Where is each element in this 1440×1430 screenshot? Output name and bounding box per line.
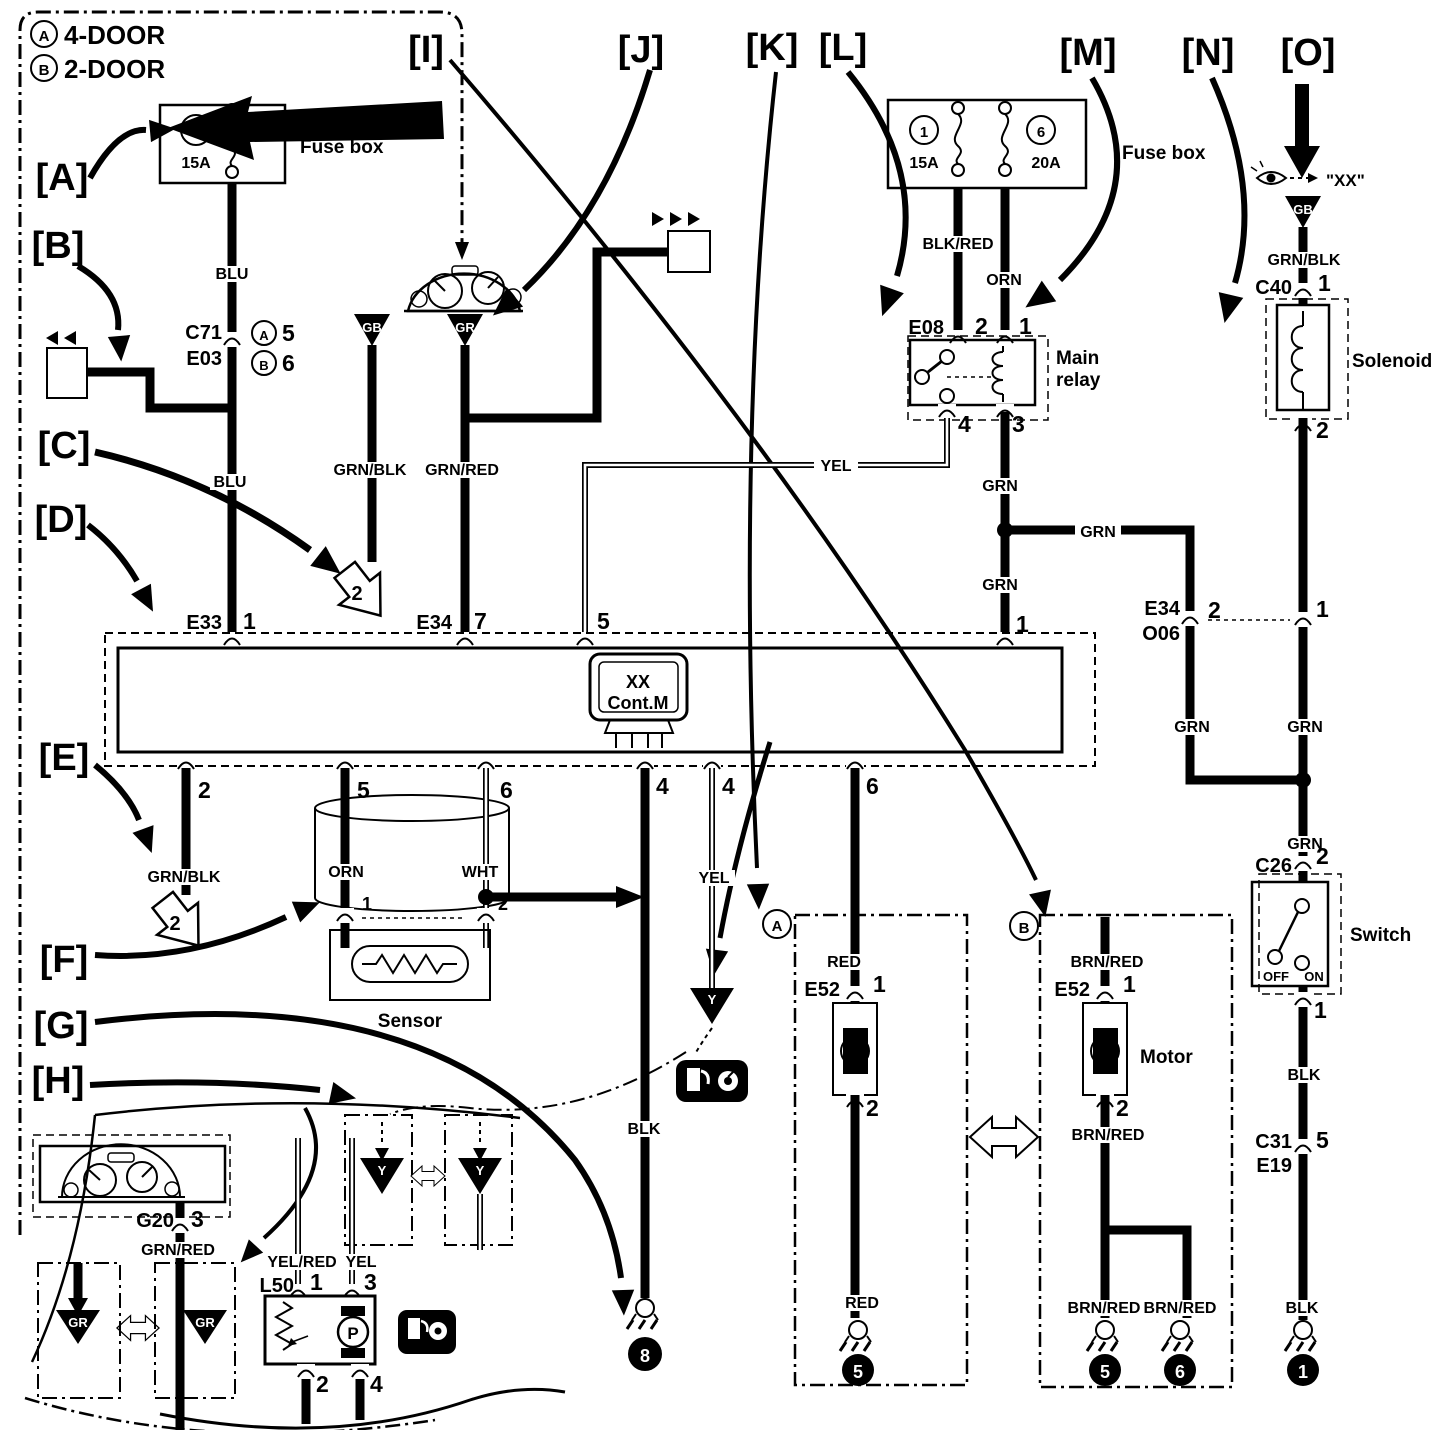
switch-off-label: OFF bbox=[1263, 969, 1289, 984]
sensor-pin-1: 1 bbox=[362, 894, 372, 914]
wire-label-grn-5: GRN bbox=[1287, 719, 1323, 736]
wire-label-orn-1: ORN bbox=[986, 272, 1022, 289]
solenoid-coil bbox=[1292, 326, 1303, 392]
variant-legend: A 4-DOOR B 2-DOOR bbox=[31, 20, 165, 84]
wire-label-brnred-3: BRN/RED bbox=[1068, 1300, 1141, 1317]
wire-label-yelred: YEL/RED bbox=[267, 1254, 336, 1271]
gb-triangle-label: GB bbox=[362, 320, 382, 335]
wht-junction-dot bbox=[478, 889, 494, 905]
wire-label-blu-2: BLU bbox=[214, 474, 247, 491]
wire-label-blkred: BLK/RED bbox=[922, 236, 993, 253]
l50-pin-4: 4 bbox=[370, 1371, 383, 1397]
module-icon-line1: XX bbox=[626, 672, 650, 692]
wire-label-yel-2: YEL bbox=[698, 870, 729, 887]
wire-label-grnblk-3: GRN/BLK bbox=[1268, 252, 1341, 269]
ground-number-1: 1 bbox=[1298, 1362, 1308, 1382]
l50-pin-2: 2 bbox=[316, 1371, 329, 1397]
switch-pin1-mark bbox=[1294, 992, 1312, 1007]
solenoid-switch-column: "XX" GB GRN/BLK C40 1 Solenoid 2 1 GRN G… bbox=[1251, 161, 1432, 1386]
wire-label-grn-3: GRN bbox=[982, 577, 1018, 594]
module-pin-5-bottom: 5 bbox=[357, 777, 370, 803]
module-icon-line2: Cont.M bbox=[608, 693, 669, 713]
module-pin-6b-bottom: 6 bbox=[866, 773, 879, 799]
pointer-o-shaft bbox=[1295, 84, 1309, 148]
l50-pump-p: P bbox=[347, 1324, 358, 1343]
connector-e08-mark-4 bbox=[938, 404, 956, 419]
pointer-o-head bbox=[1284, 146, 1320, 178]
callout-m: [M] bbox=[1060, 32, 1117, 74]
ground-number-5a: 5 bbox=[853, 1362, 863, 1382]
ground-number-5b: 5 bbox=[1100, 1362, 1110, 1382]
connector-c31: C31 bbox=[1255, 1131, 1292, 1153]
l50-pin-3: 3 bbox=[364, 1269, 377, 1295]
wire-label-grn-2: GRN bbox=[1080, 524, 1116, 541]
right-arrow-icon bbox=[688, 212, 700, 226]
resistor-zigzag bbox=[362, 955, 457, 973]
motor-branch-a: A RED E52 1 M 2 RED 5 bbox=[763, 768, 967, 1386]
connector-e33: E33 bbox=[186, 612, 222, 634]
connector-e08-mark-2 bbox=[949, 330, 967, 345]
connector-e52-a: E52 bbox=[804, 979, 840, 1001]
branch-arrow-into-blk bbox=[616, 886, 644, 908]
xx-target-label: "XX" bbox=[1326, 171, 1365, 190]
dashed-arrow-head bbox=[1308, 173, 1318, 183]
main-relay-circuit: BLK/RED ORN E08 2 1 Main relay 4 3 YEL 5… bbox=[576, 188, 1297, 780]
relay-contact-arm bbox=[928, 361, 942, 372]
module-pin1-mark bbox=[996, 632, 1014, 647]
connector-l50-mark-2 bbox=[297, 1364, 315, 1379]
jump-number-2: 2 bbox=[169, 913, 180, 935]
wire-label-wht: WHT bbox=[462, 864, 499, 881]
wire-label-blk-1: BLK bbox=[628, 1121, 661, 1138]
connector-e33-mark bbox=[223, 632, 241, 647]
e34o06-pin-2: 2 bbox=[1208, 597, 1221, 623]
connector-e19: E19 bbox=[1256, 1155, 1292, 1177]
wire-label-grn-4: GRN bbox=[1174, 719, 1210, 736]
gb-triangle-label-2: GB bbox=[1293, 202, 1313, 217]
wire-label-grnred-2: GRN/RED bbox=[141, 1242, 215, 1259]
callout-g: [G] bbox=[34, 1005, 89, 1047]
relay-label-1: Main bbox=[1056, 348, 1099, 369]
ground-symbol-5a bbox=[840, 1321, 871, 1351]
e34-pin-7: 7 bbox=[474, 608, 487, 634]
module-pin-6a-bottom: 6 bbox=[500, 777, 513, 803]
gr-triangle-label-3: GR bbox=[195, 1315, 215, 1330]
module-pin-4b-bottom: 4 bbox=[722, 773, 735, 799]
fuel-pump-icon bbox=[676, 1060, 748, 1102]
sensor-pin-2: 2 bbox=[498, 894, 508, 914]
fuse-box-label: Fuse box bbox=[300, 137, 384, 158]
callout-j: [J] bbox=[618, 29, 664, 71]
fuel-pump-icon-2 bbox=[398, 1310, 456, 1354]
callout-h: [H] bbox=[32, 1060, 85, 1102]
swap-arrow-icon-2 bbox=[117, 1316, 159, 1341]
callout-d: [D] bbox=[35, 499, 88, 541]
c71-pin-a: 5 bbox=[282, 320, 295, 346]
e08-pin-2: 2 bbox=[975, 313, 988, 339]
y-triangle-label: Y bbox=[708, 992, 717, 1007]
wire-label-yel-1: YEL bbox=[820, 458, 851, 475]
wire-label-grn-1: GRN bbox=[982, 478, 1018, 495]
fuse6-number: 6 bbox=[1037, 124, 1045, 141]
left-arrow-icon bbox=[64, 331, 76, 345]
swap-arrow-icon-3 bbox=[411, 1166, 445, 1186]
connector-c71: C71 bbox=[185, 322, 222, 344]
ground-symbol-8 bbox=[627, 1299, 658, 1329]
l50-pin-1: 1 bbox=[310, 1269, 323, 1295]
wire-label-blk-2: BLK bbox=[1288, 1067, 1321, 1084]
e52b-pin-1: 1 bbox=[1123, 971, 1136, 997]
connector-c26-mark bbox=[1294, 856, 1312, 871]
fuse-number: 3 bbox=[192, 124, 200, 141]
connector-block-shaded-mid bbox=[668, 231, 710, 272]
switch-pin-1: 1 bbox=[1314, 997, 1327, 1023]
junction-dot-2 bbox=[1295, 772, 1311, 788]
ground-symbol-1 bbox=[1285, 1321, 1316, 1351]
callout-a: [A] bbox=[36, 157, 89, 199]
callout-k: [K] bbox=[746, 27, 799, 69]
c31-pin-5: 5 bbox=[1316, 1127, 1329, 1153]
right-arrow-icon bbox=[652, 212, 664, 226]
e08-pin-4: 4 bbox=[958, 411, 971, 437]
c26-pin-2: 2 bbox=[1316, 843, 1329, 869]
callout-i: [I] bbox=[408, 29, 444, 71]
connector-c40: C40 bbox=[1255, 277, 1292, 299]
connector-g20: G20 bbox=[136, 1210, 174, 1232]
solenoid-label: Solenoid bbox=[1352, 351, 1432, 372]
wire-label-grnblk-2: GRN/BLK bbox=[148, 869, 221, 886]
fuse6-amp: 20A bbox=[1031, 155, 1061, 172]
wiring-diagram-page: A 4-DOOR B 2-DOOR [A] [B] [C] [D] [E] [F… bbox=[0, 0, 1440, 1430]
instrument-cluster-icon-bottom bbox=[58, 1144, 185, 1197]
wire-label-blu-1: BLU bbox=[216, 266, 249, 283]
y-boxes: Y Y bbox=[345, 1115, 512, 1250]
fuse-amp-rating: 15A bbox=[181, 155, 211, 172]
module-pin-2-bottom: 2 bbox=[198, 777, 211, 803]
relay-label-2: relay bbox=[1056, 370, 1101, 391]
wire-to-blu bbox=[87, 372, 232, 408]
fuse1-number: 1 bbox=[920, 124, 928, 141]
motor-label: Motor bbox=[1140, 1047, 1193, 1068]
connector-e52b-mark bbox=[1096, 986, 1114, 1001]
wire-label-red-1: RED bbox=[827, 954, 861, 971]
gr-triangle-label: GR bbox=[455, 320, 475, 335]
wire-label-brnred-2: BRN/RED bbox=[1072, 1127, 1145, 1144]
wire-grn-branch bbox=[1005, 530, 1297, 780]
connector-e34o06-mark bbox=[1181, 611, 1199, 626]
relay-coil bbox=[993, 352, 1004, 394]
e08-pin-1: 1 bbox=[1019, 313, 1032, 339]
motor-a-m: M bbox=[849, 1045, 862, 1062]
connector-l50: L50 bbox=[260, 1275, 294, 1297]
variant-a-circle: A bbox=[772, 918, 783, 935]
callout-c: [C] bbox=[38, 425, 91, 467]
wire-label-grnblk-1: GRN/BLK bbox=[334, 462, 407, 479]
motor-b-m: M bbox=[1099, 1045, 1112, 1062]
legend-b-symbol: B bbox=[39, 62, 50, 79]
fuse-box-right: 1 15A 6 20A Fuse box bbox=[888, 100, 1206, 188]
link-pin-mark bbox=[1294, 612, 1312, 627]
wire-yel-thin bbox=[585, 418, 947, 648]
motor-branch-b: B BRN/RED E52 1 M Motor 2 BRN/RED BRN/RE… bbox=[1010, 912, 1232, 1387]
fuse-symbol-6 bbox=[999, 102, 1011, 176]
switch-contact-arm bbox=[1279, 912, 1298, 951]
ground-symbol-6 bbox=[1162, 1321, 1193, 1351]
sensor-pin2-mark bbox=[477, 908, 495, 923]
e52a-pin-1: 1 bbox=[873, 971, 886, 997]
e08-pin-3: 3 bbox=[1012, 411, 1025, 437]
wire-label-brnred-4: BRN/RED bbox=[1144, 1300, 1217, 1317]
connector-e34-mark bbox=[456, 632, 474, 647]
y-triangle-label-1: Y bbox=[378, 1163, 387, 1178]
connector-block-shaded-left bbox=[47, 348, 87, 398]
connector-c31-mark bbox=[1294, 1139, 1312, 1154]
variant-b-circle: B bbox=[1019, 920, 1030, 937]
wire-label-orn-2: ORN bbox=[328, 864, 364, 881]
legend-a-symbol: A bbox=[39, 28, 50, 45]
wire-label-brnred-1: BRN/RED bbox=[1071, 954, 1144, 971]
variant-a-mark: A bbox=[259, 328, 269, 343]
connector-e34: E34 bbox=[416, 612, 452, 634]
switch-on-label: ON bbox=[1304, 969, 1324, 984]
ground-number-6: 6 bbox=[1175, 1362, 1185, 1382]
blk-yel-outputs: BLK 8 YEL Y bbox=[390, 768, 748, 1371]
connector-c71-mark bbox=[223, 332, 241, 347]
callout-e: [E] bbox=[39, 737, 90, 779]
e52b-pin-2: 2 bbox=[1116, 1095, 1129, 1121]
link-pin-1: 1 bbox=[1316, 596, 1329, 622]
c71-pin-b: 6 bbox=[282, 350, 295, 376]
jump-number-1: 2 bbox=[351, 583, 362, 605]
callout-o: [O] bbox=[1281, 32, 1336, 74]
module-icon: XX Cont.M bbox=[590, 654, 687, 748]
gr-triangle-label-2: GR bbox=[68, 1315, 88, 1330]
fuse1-amp: 15A bbox=[909, 155, 939, 172]
sensor-label: Sensor bbox=[378, 1011, 443, 1032]
sensor-pin1-mark bbox=[336, 908, 354, 923]
e52a-pin-2: 2 bbox=[866, 1095, 879, 1121]
connector-e08-mark-1 bbox=[996, 330, 1014, 345]
connector-e34o06-1: E34 bbox=[1144, 598, 1180, 620]
module-pin-4a-bottom: 4 bbox=[656, 773, 669, 799]
g20-pin-3: 3 bbox=[191, 1206, 204, 1232]
legend-a-text: 4-DOOR bbox=[64, 20, 165, 50]
connector-e52-b: E52 bbox=[1054, 979, 1090, 1001]
wire-label-blk-3: BLK bbox=[1286, 1300, 1319, 1317]
y-triangle-label-2: Y bbox=[476, 1163, 485, 1178]
callout-b: [B] bbox=[32, 225, 85, 267]
connector-c40-mark bbox=[1294, 283, 1312, 298]
connector-e34o06-2: O06 bbox=[1142, 623, 1180, 645]
c40-pin-1: 1 bbox=[1318, 270, 1331, 296]
switch-label: Switch bbox=[1350, 925, 1411, 946]
fuse-box-right-label: Fuse box bbox=[1122, 143, 1206, 164]
swap-arrow-icon bbox=[970, 1117, 1038, 1157]
wire-label-red-2: RED bbox=[845, 1295, 879, 1312]
fuse-symbol-1 bbox=[952, 102, 964, 176]
e33-pin-1: 1 bbox=[243, 608, 256, 634]
connector-e03: E03 bbox=[186, 348, 222, 370]
left-arrow-icon bbox=[46, 331, 58, 345]
connector-l50-mark-4 bbox=[351, 1364, 369, 1379]
ground-number-8: 8 bbox=[640, 1346, 650, 1366]
variant-b-mark: B bbox=[259, 358, 268, 373]
dashdot-arrow-to-cluster bbox=[455, 242, 469, 260]
module-pin5-mark bbox=[576, 632, 594, 647]
wiring-diagram-canvas: A 4-DOOR B 2-DOOR [A] [B] [C] [D] [E] [F… bbox=[0, 0, 1440, 1430]
pointer-i-diagonal bbox=[450, 60, 1036, 880]
solenoid-pin-2: 2 bbox=[1316, 417, 1329, 443]
legend-b-text: 2-DOOR bbox=[64, 54, 165, 84]
gb-gr-columns: GB GRN/BLK 2 GR GRN/RED E34 7 bbox=[324, 212, 710, 648]
sensor-branch: GRN/BLK 2 ORN WHT 1 2 Sensor bbox=[142, 768, 644, 1032]
eye-icon bbox=[1251, 161, 1286, 184]
wire-feed bbox=[465, 252, 668, 418]
gr-box-right bbox=[155, 1263, 235, 1398]
wire-label-grnred-1: GRN/RED bbox=[425, 462, 499, 479]
callout-f: [F] bbox=[40, 939, 89, 981]
ground-symbol-5b bbox=[1087, 1321, 1118, 1351]
callout-n: [N] bbox=[1182, 32, 1235, 74]
module-pin-5-top: 5 bbox=[597, 608, 610, 634]
right-arrow-icon bbox=[670, 212, 682, 226]
connector-e52a-mark bbox=[846, 986, 864, 1001]
callout-l: [L] bbox=[819, 27, 868, 69]
